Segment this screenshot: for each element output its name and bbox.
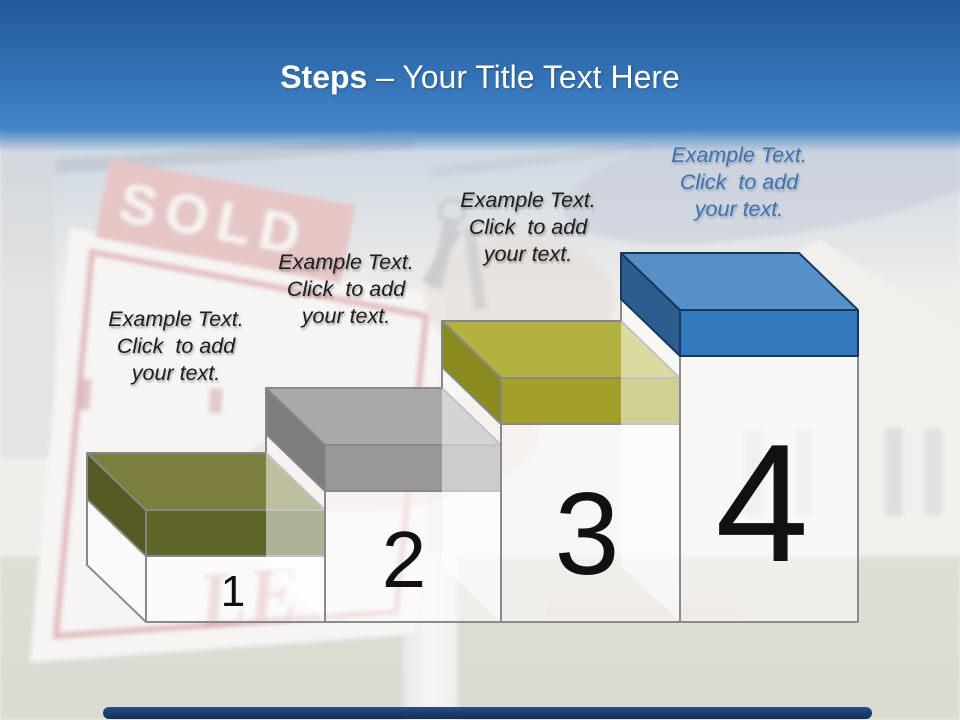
step-4-label: Example Text. Click to add your text. (624, 142, 854, 223)
footer-bar (103, 707, 872, 719)
slide-title: Steps – Your Title Text Here (0, 57, 960, 97)
step-4-number: 4 (715, 409, 808, 597)
step-4: 4 (621, 253, 858, 622)
step-4-label-line: your text. (624, 196, 854, 223)
step-2-number: 2 (382, 515, 427, 604)
step-4-label-line: Click to add (624, 169, 854, 196)
step-1-label-line: Click to add (61, 333, 291, 360)
slide-title-rest: – Your Title Text Here (367, 59, 679, 95)
step-2-label-line: Click to add (231, 276, 461, 303)
step-3-label-line: Click to add (413, 214, 643, 241)
step-4-label-line: Example Text. (624, 142, 854, 169)
step-2-label-line: your text. (231, 303, 461, 330)
step-3-label-line: Example Text. (413, 187, 643, 214)
step-3-label-line: your text. (413, 241, 643, 268)
step-4-slab-front (680, 310, 858, 356)
slide-canvas: LE SOLD 1 (0, 0, 960, 720)
step-3-number: 3 (554, 468, 619, 599)
step-1-number: 1 (221, 567, 245, 616)
slide-title-keyword: Steps (280, 59, 367, 95)
step-3-label: Example Text. Click to add your text. (413, 187, 643, 268)
step-1-label-line: your text. (61, 360, 291, 387)
